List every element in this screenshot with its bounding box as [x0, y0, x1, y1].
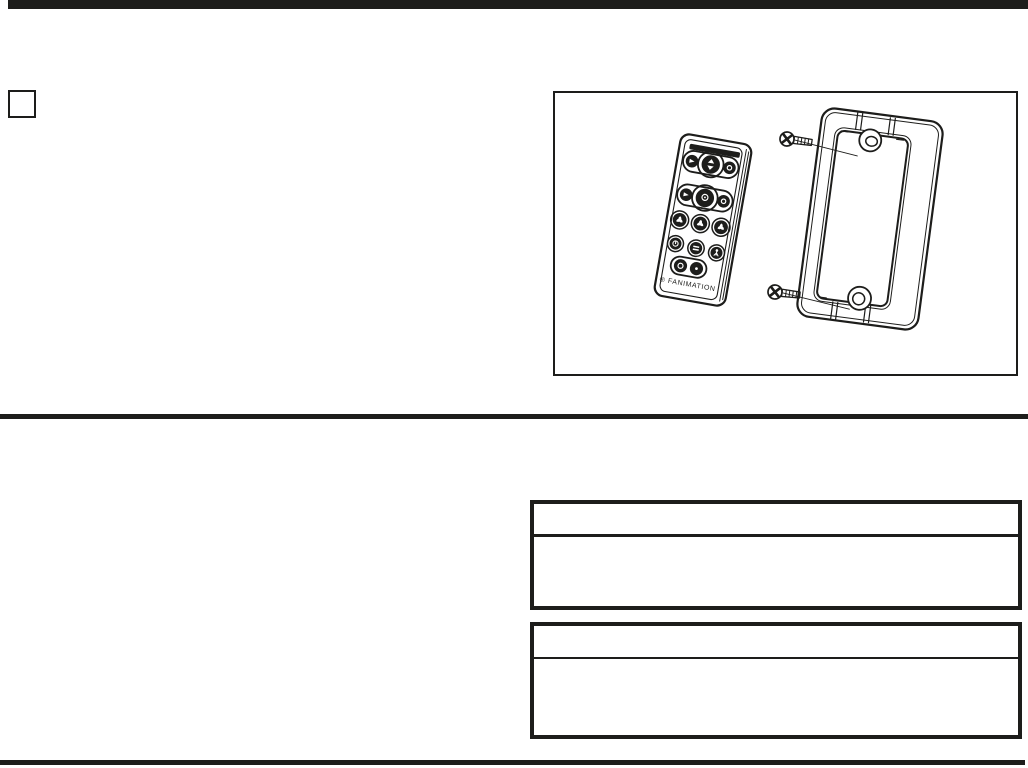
power-buttons-pill: [669, 255, 708, 279]
figure-drawing: ® FANIMATION: [555, 93, 1016, 374]
notes-table-2: [530, 622, 1022, 739]
light-brighten-button: [716, 194, 731, 209]
fan-power-button: [700, 154, 721, 175]
footer-rule: [0, 760, 1025, 765]
manual-page: ® FANIMATION: [0, 0, 1028, 768]
fan-speed-buttons-row: [669, 210, 731, 238]
light-control-cluster: [675, 181, 735, 216]
brand-label: ® FANIMATION: [659, 275, 716, 293]
fan-up-button: [722, 161, 737, 176]
top-rule: [8, 0, 1028, 9]
notes-table-1: [530, 500, 1022, 610]
breeze-button: [686, 239, 705, 258]
section-divider-rule: [0, 414, 1028, 419]
notes-table-1-header: [534, 504, 1018, 537]
mounting-screw-bottom: [767, 284, 851, 309]
remote-control-drawing: ® FANIMATION: [653, 133, 752, 307]
remote-wallplate-figure: ® FANIMATION: [553, 91, 1018, 376]
notes-table-2-body: [534, 659, 1018, 735]
screw-boss-top: [858, 128, 883, 153]
notes-table-1-body: [534, 537, 1018, 606]
wall-cradle-drawing: [796, 107, 944, 331]
phillips-head-icon: [782, 134, 792, 144]
notes-table-2-header: [534, 626, 1018, 659]
cradle-opening-rim: [813, 127, 912, 311]
step-number-box: [8, 90, 36, 118]
all-on-button: [673, 258, 688, 273]
fan-speed-med-button: [690, 213, 711, 234]
screw-leader-line-top: [794, 140, 858, 156]
phillips-head-icon: [770, 287, 780, 297]
cradle-opening: [816, 130, 908, 307]
